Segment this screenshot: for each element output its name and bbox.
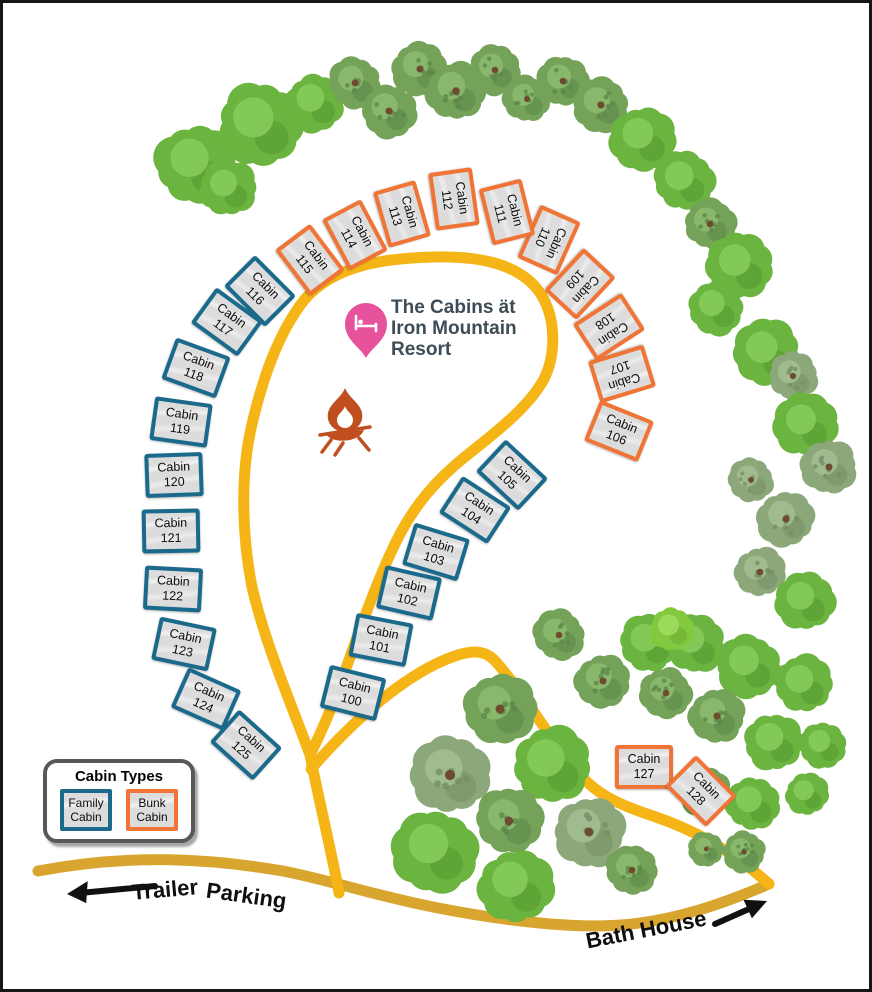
tree	[606, 846, 658, 895]
legend-row: Family Cabin Bunk Cabin	[60, 789, 178, 831]
cabin-word: Cabin	[452, 181, 471, 215]
cabin-number: 122	[162, 588, 184, 604]
cabin-119: Cabin119	[149, 396, 213, 448]
tree	[723, 830, 766, 873]
tree	[770, 351, 819, 400]
legend-family-line2: Cabin	[70, 810, 101, 824]
tree	[199, 161, 256, 214]
cabin-127: Cabin127	[615, 745, 673, 789]
tree	[639, 667, 693, 719]
loop-tail-road	[310, 755, 339, 893]
cabin-number: 101	[368, 638, 391, 657]
tree	[688, 832, 724, 866]
tree	[774, 653, 833, 711]
resort-title-line2: Iron Mountain	[391, 318, 517, 339]
cabin-number: 112	[438, 189, 456, 211]
tree	[724, 777, 780, 829]
tree	[476, 789, 545, 853]
cabin-number: 121	[161, 531, 182, 546]
tree	[756, 492, 816, 548]
cabin-112: Cabin112	[428, 167, 480, 231]
cabin-types-legend: Cabin Types Family Cabin Bunk Cabin	[43, 759, 195, 843]
tree	[477, 850, 556, 922]
cabin-number: 119	[169, 421, 191, 439]
legend-family-line1: Family	[68, 796, 103, 810]
cabin-word: Cabin	[157, 459, 190, 475]
cabin-number: 123	[171, 642, 195, 661]
resort-title-line1: The Cabins ät	[391, 297, 517, 318]
tree	[532, 608, 584, 661]
tree	[728, 457, 774, 502]
tree	[785, 773, 829, 815]
tree	[651, 607, 695, 650]
cabin-word: Cabin	[154, 516, 187, 532]
legend-bunk-line1: Bunk	[138, 796, 165, 810]
tree	[514, 725, 590, 802]
campfire-icon	[320, 388, 370, 455]
tree	[798, 723, 847, 769]
legend-bunk-cabin: Bunk Cabin	[126, 789, 178, 831]
resort-map: Cabin100Cabin101Cabin102Cabin103Cabin104…	[0, 0, 872, 992]
tree	[463, 674, 538, 744]
cabin-number: 120	[164, 475, 185, 491]
cabin-120: Cabin120	[144, 452, 204, 498]
legend-bunk-line2: Cabin	[136, 810, 167, 824]
tree	[744, 715, 804, 770]
resort-title: The Cabins ät Iron Mountain Resort	[391, 297, 517, 360]
resort-title-line3: Resort	[391, 339, 517, 360]
tree	[688, 280, 743, 336]
cabin-number: 127	[634, 767, 655, 782]
cabin-122: Cabin122	[143, 566, 203, 613]
cabin-number: 102	[395, 591, 419, 610]
cabin-word: Cabin	[628, 752, 661, 767]
tree	[573, 655, 630, 709]
cabin-121: Cabin121	[142, 508, 201, 553]
cabin-word: Cabin	[157, 573, 190, 590]
map-canvas	[3, 3, 872, 992]
tree	[687, 689, 745, 743]
tree	[391, 812, 480, 894]
legend-family-cabin: Family Cabin	[60, 789, 112, 831]
legend-title: Cabin Types	[75, 768, 163, 785]
map-pin-bed-icon	[345, 303, 387, 358]
tree	[410, 735, 491, 812]
